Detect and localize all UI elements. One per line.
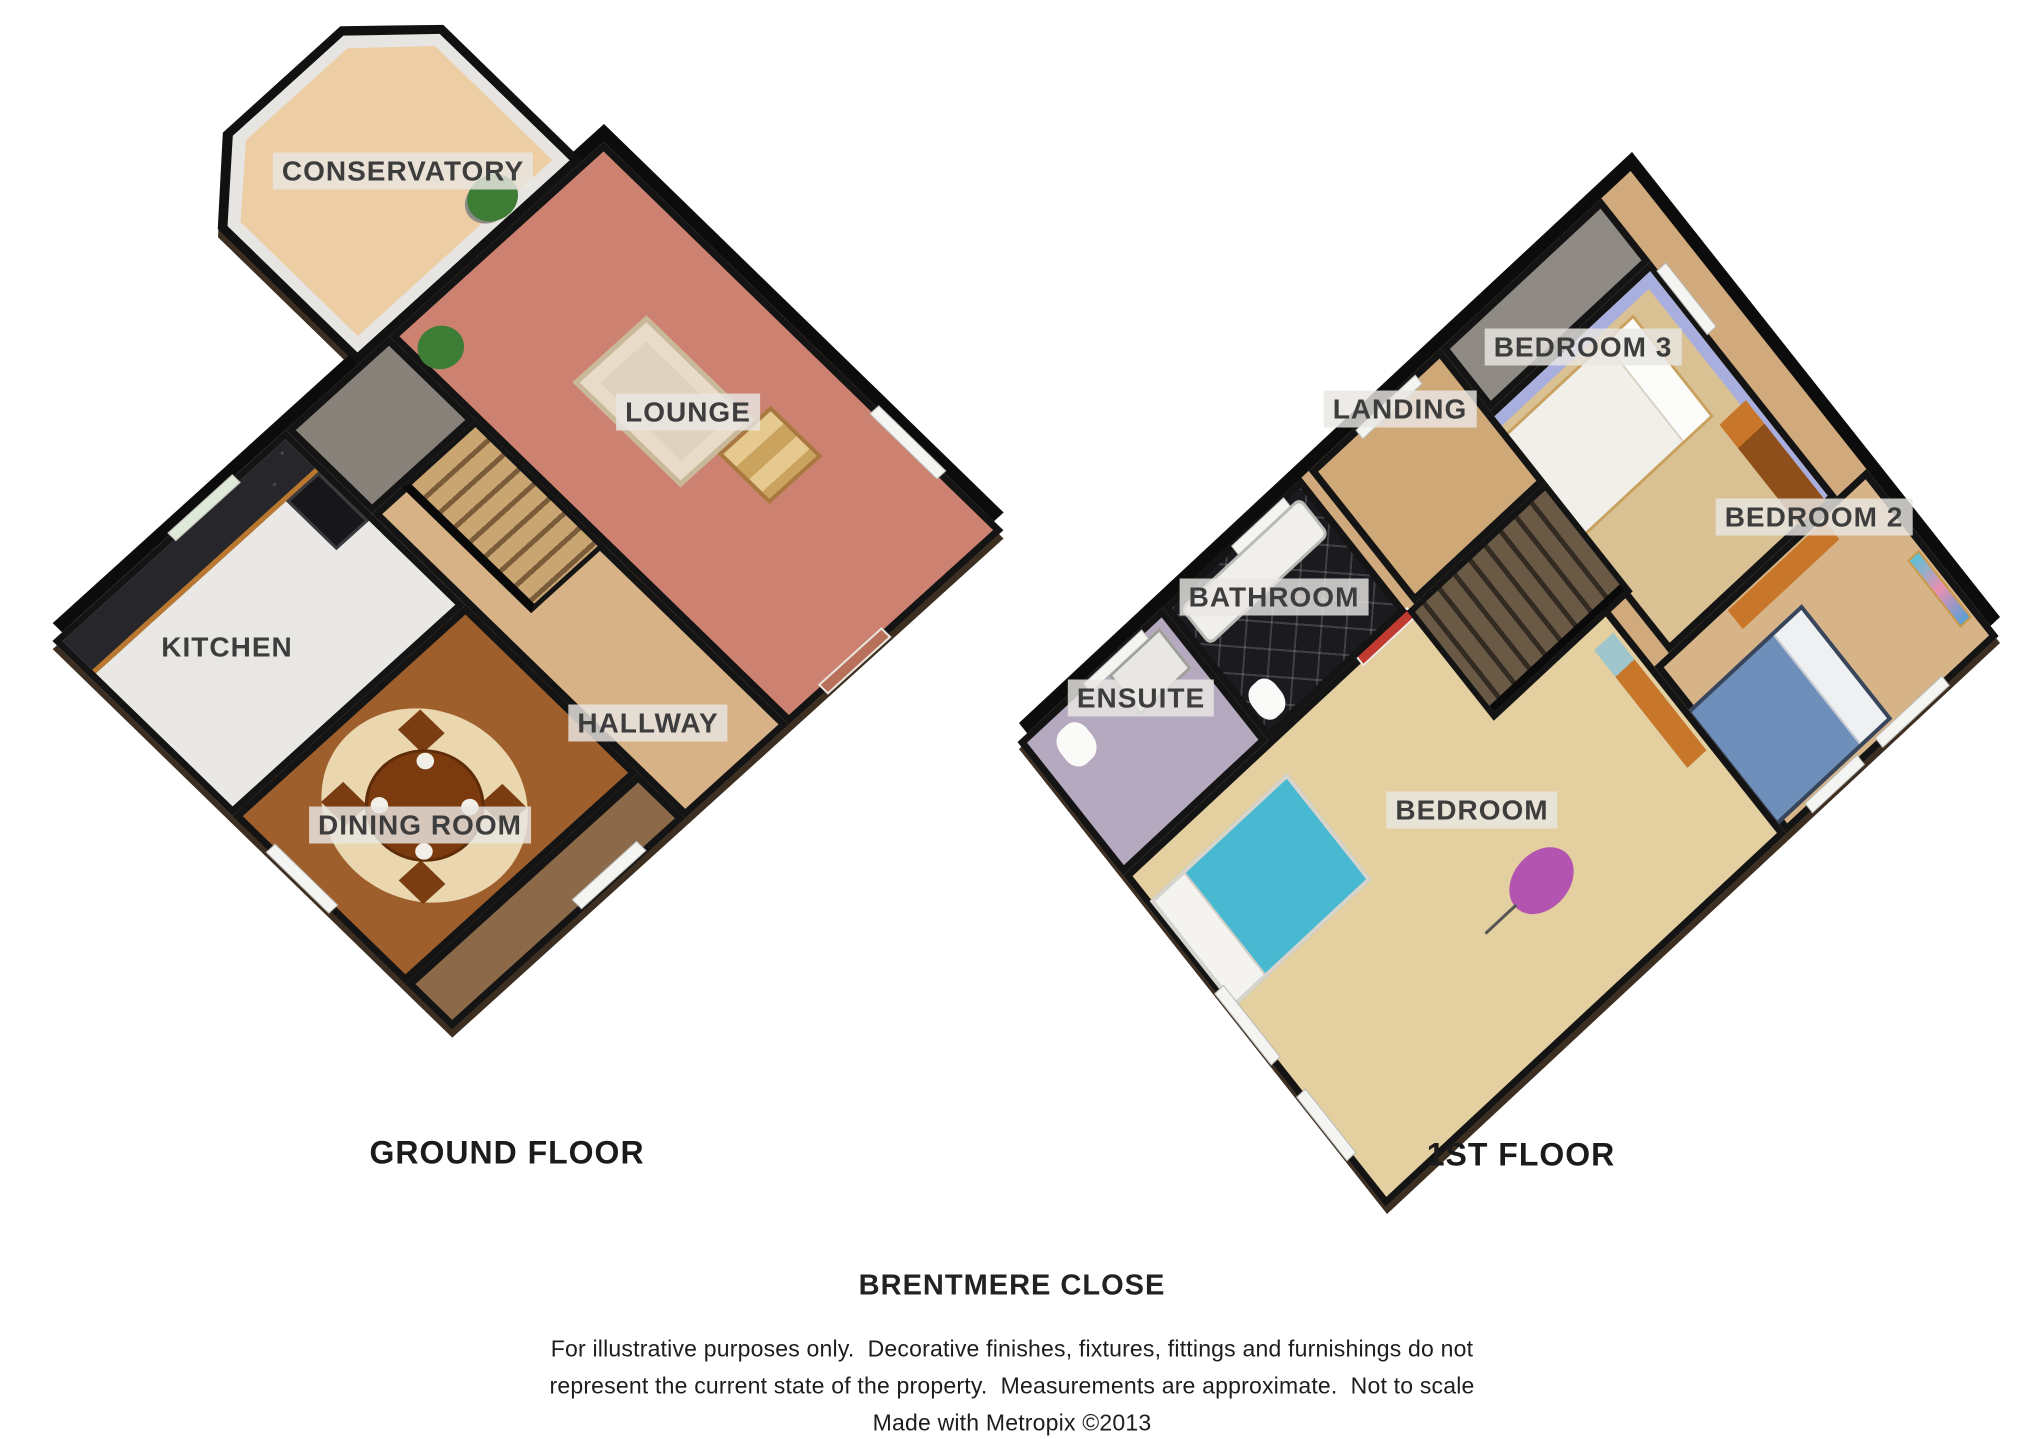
disclaimer-line-3: Made with Metropix ©2013 [873, 1410, 1152, 1437]
ground-floor-plan [53, 124, 1004, 1012]
label-bedroom2: BEDROOM 2 [1716, 499, 1913, 536]
label-bedroom3: BEDROOM 3 [1485, 329, 1682, 366]
bathtub [1180, 497, 1330, 646]
lounge-wall-picture [818, 627, 892, 694]
first-floor-caption: 1ST FLOOR [1427, 1137, 1616, 1174]
label-bathroom: BATHROOM [1180, 579, 1369, 616]
pillows [1774, 610, 1887, 744]
floorplan-page: CONSERVATORY LOUNGE KITCHEN HALLWAY DINI… [0, 0, 2025, 1439]
pillows [1155, 873, 1265, 1002]
label-kitchen: KITCHEN [152, 629, 301, 666]
disclaimer-line-1: For illustrative purposes only. Decorati… [551, 1336, 1473, 1363]
label-dining-room: DINING ROOM [309, 807, 531, 844]
label-conservatory: CONSERVATORY [273, 153, 533, 190]
property-address: BRENTMERE CLOSE [859, 1270, 1166, 1303]
label-ensuite: ENSUITE [1068, 680, 1214, 717]
wall-picture [1907, 550, 1972, 628]
label-hallway: HALLWAY [568, 705, 727, 742]
plate [413, 749, 438, 772]
label-landing: LANDING [1324, 391, 1477, 428]
label-bedroom-master: BEDROOM [1386, 792, 1557, 829]
front-door [573, 842, 645, 908]
label-lounge: LOUNGE [616, 394, 760, 431]
disclaimer-line-2: represent the current state of the prope… [549, 1373, 1474, 1400]
balloon-lamp [1497, 833, 1586, 927]
ground-floor-caption: GROUND FLOOR [369, 1135, 644, 1172]
toilet [1050, 716, 1102, 773]
balloon-lamp-stem [1485, 904, 1518, 935]
first-floor-plan [1019, 152, 2000, 1188]
